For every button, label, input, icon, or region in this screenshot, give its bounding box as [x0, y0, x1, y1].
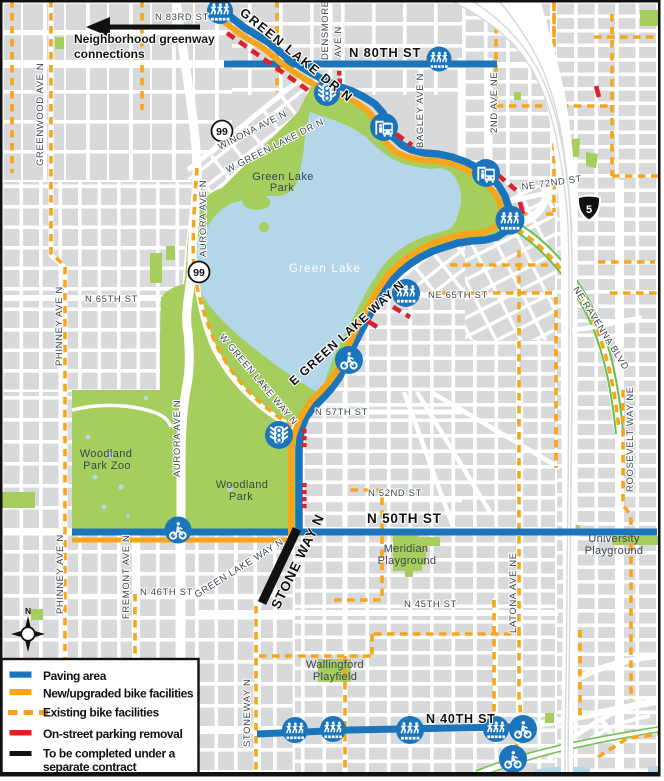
svg-text:Playfield: Playfield — [313, 671, 357, 683]
svg-text:Paving area: Paving area — [43, 669, 107, 683]
svg-text:Woodland: Woodland — [80, 448, 133, 460]
svg-text:LATONA AVE NE: LATONA AVE NE — [508, 552, 519, 633]
svg-text:BAGLEY AVE N: BAGLEY AVE N — [415, 73, 426, 148]
svg-text:Meridian: Meridian — [384, 543, 429, 555]
svg-text:Park: Park — [270, 182, 294, 194]
svg-text:Woodland: Woodland — [216, 479, 269, 491]
svg-text:On-street parking removal: On-street parking removal — [43, 727, 182, 741]
svg-text:Playground: Playground — [585, 545, 644, 557]
svg-text:To be completed under a: To be completed under a — [43, 747, 176, 761]
svg-text:PHINNEY AVE N: PHINNEY AVE N — [55, 534, 66, 614]
svg-text:AURORA AVE N: AURORA AVE N — [172, 400, 183, 477]
svg-text:N 50TH ST: N 50TH ST — [367, 511, 442, 526]
svg-text:N 40TH ST: N 40TH ST — [426, 712, 496, 726]
svg-text:N 83RD ST: N 83RD ST — [155, 12, 209, 23]
svg-text:separate contract: separate contract — [43, 760, 137, 774]
svg-text:Existing bike facilities: Existing bike facilities — [43, 706, 160, 720]
svg-text:Green Lake: Green Lake — [289, 263, 361, 275]
svg-text:N 46TH ST: N 46TH ST — [140, 587, 193, 598]
svg-text:Park: Park — [229, 491, 253, 503]
svg-text:Park Zoo: Park Zoo — [83, 460, 131, 472]
svg-text:AURORA AVE N: AURORA AVE N — [198, 180, 209, 257]
svg-text:99: 99 — [193, 267, 205, 279]
svg-text:Playground: Playground — [378, 555, 437, 567]
svg-text:2ND AVE NE: 2ND AVE NE — [489, 72, 500, 133]
svg-text:N: N — [25, 606, 31, 616]
svg-text:STONEWAY N: STONEWAY N — [242, 679, 253, 747]
svg-text:5: 5 — [586, 204, 592, 216]
svg-text:PHINNEY AVE N: PHINNEY AVE N — [54, 286, 65, 366]
svg-text:University: University — [588, 533, 639, 545]
svg-text:FREMONT AVE N: FREMONT AVE N — [121, 534, 132, 619]
svg-text:N 80TH ST: N 80TH ST — [349, 45, 421, 60]
svg-text:ROOSEVELT WAY NE: ROOSEVELT WAY NE — [625, 386, 636, 492]
svg-text:New/upgraded bike facilities: New/upgraded bike facilities — [43, 687, 194, 701]
svg-text:DENSMORE: DENSMORE — [320, 0, 331, 60]
svg-text:N 45TH ST: N 45TH ST — [404, 599, 457, 610]
svg-text:AVE N: AVE N — [333, 26, 344, 57]
svg-text:GREENWOOD AVE N: GREENWOOD AVE N — [35, 63, 46, 166]
svg-text:Neighborhood greenway: Neighborhood greenway — [74, 32, 215, 46]
svg-text:N 57TH ST: N 57TH ST — [315, 407, 368, 418]
svg-text:connections: connections — [74, 47, 145, 61]
svg-text:Wallingford: Wallingford — [306, 659, 364, 671]
svg-text:99: 99 — [216, 126, 228, 138]
svg-text:N 52ND ST: N 52ND ST — [368, 488, 422, 499]
svg-text:NE 65TH ST: NE 65TH ST — [428, 290, 488, 301]
svg-text:N 65TH ST: N 65TH ST — [85, 294, 138, 305]
